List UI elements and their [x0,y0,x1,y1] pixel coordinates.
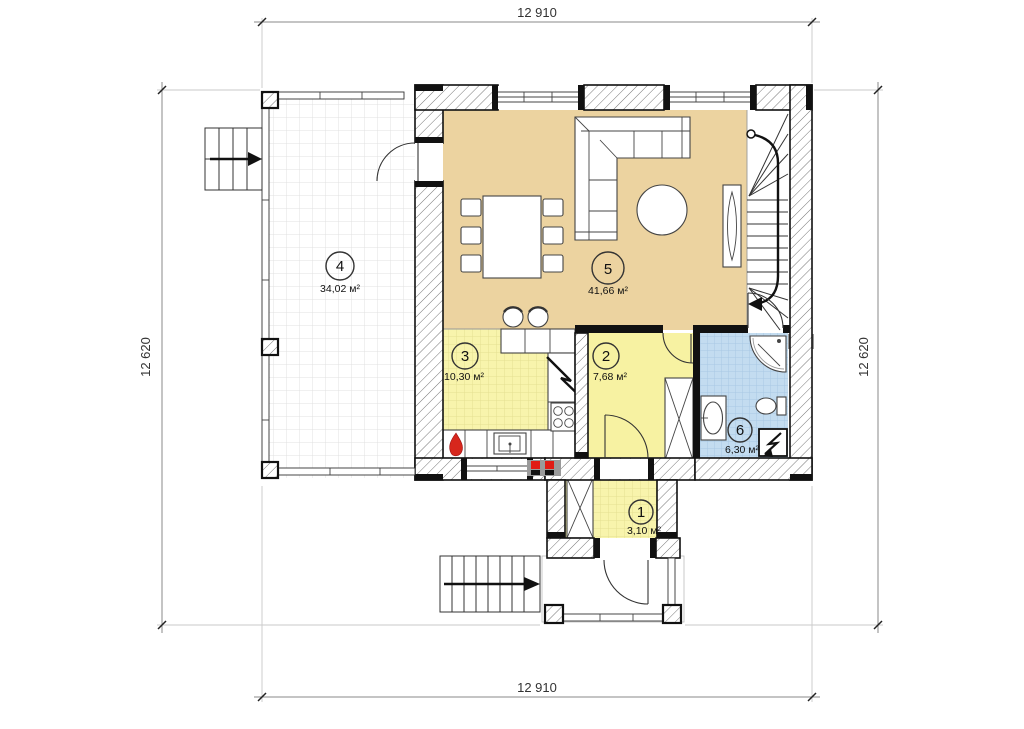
floor-plan-drawing: 12 910 12 910 12 620 12 620 4 34,02 м² 5… [0,0,1024,724]
dining-table [461,196,563,278]
toilet [756,397,786,415]
wardrobe-entry [567,478,593,538]
stove [551,403,576,431]
room-1-area: 3,10 м² [627,525,662,537]
window-top-right [670,86,750,109]
round-table [637,185,687,235]
dimension-top-label: 12 910 [517,5,557,20]
dimension-bottom-label: 12 910 [517,680,557,695]
zigzag-symbol-bathroom [759,429,787,457]
window-top-left [498,86,578,109]
room-6-area: 6,30 м² [725,444,760,456]
gas-meter-block [527,460,561,476]
dimension-left-label: 12 620 [138,337,153,377]
room-1-number: 1 [637,504,645,521]
radiator [723,185,741,267]
window-bottom [467,459,527,479]
terrace-stairs [205,128,262,190]
entrance-stairs [440,556,540,612]
room-6-number: 6 [736,422,744,439]
room-4-number: 4 [336,258,344,275]
room-3-area: 10,30 м² [444,371,484,383]
room-5-number: 5 [604,261,612,278]
washbasin [701,396,726,440]
floor-plan-page: 12 910 12 910 12 620 12 620 4 34,02 м² 5… [0,0,1024,724]
dimension-top: 12 910 [254,5,820,88]
room-2-area: 7,68 м² [593,371,628,383]
kitchen-sink [494,433,526,454]
wardrobe-hall [665,378,693,460]
room-3-number: 3 [461,348,469,365]
room-4-area: 34,02 м² [320,283,360,295]
room-5-area: 41,66 м² [588,285,628,297]
room-2-number: 2 [602,348,610,365]
dimension-right-label: 12 620 [856,337,871,377]
dimension-bottom: 12 910 [254,486,820,702]
